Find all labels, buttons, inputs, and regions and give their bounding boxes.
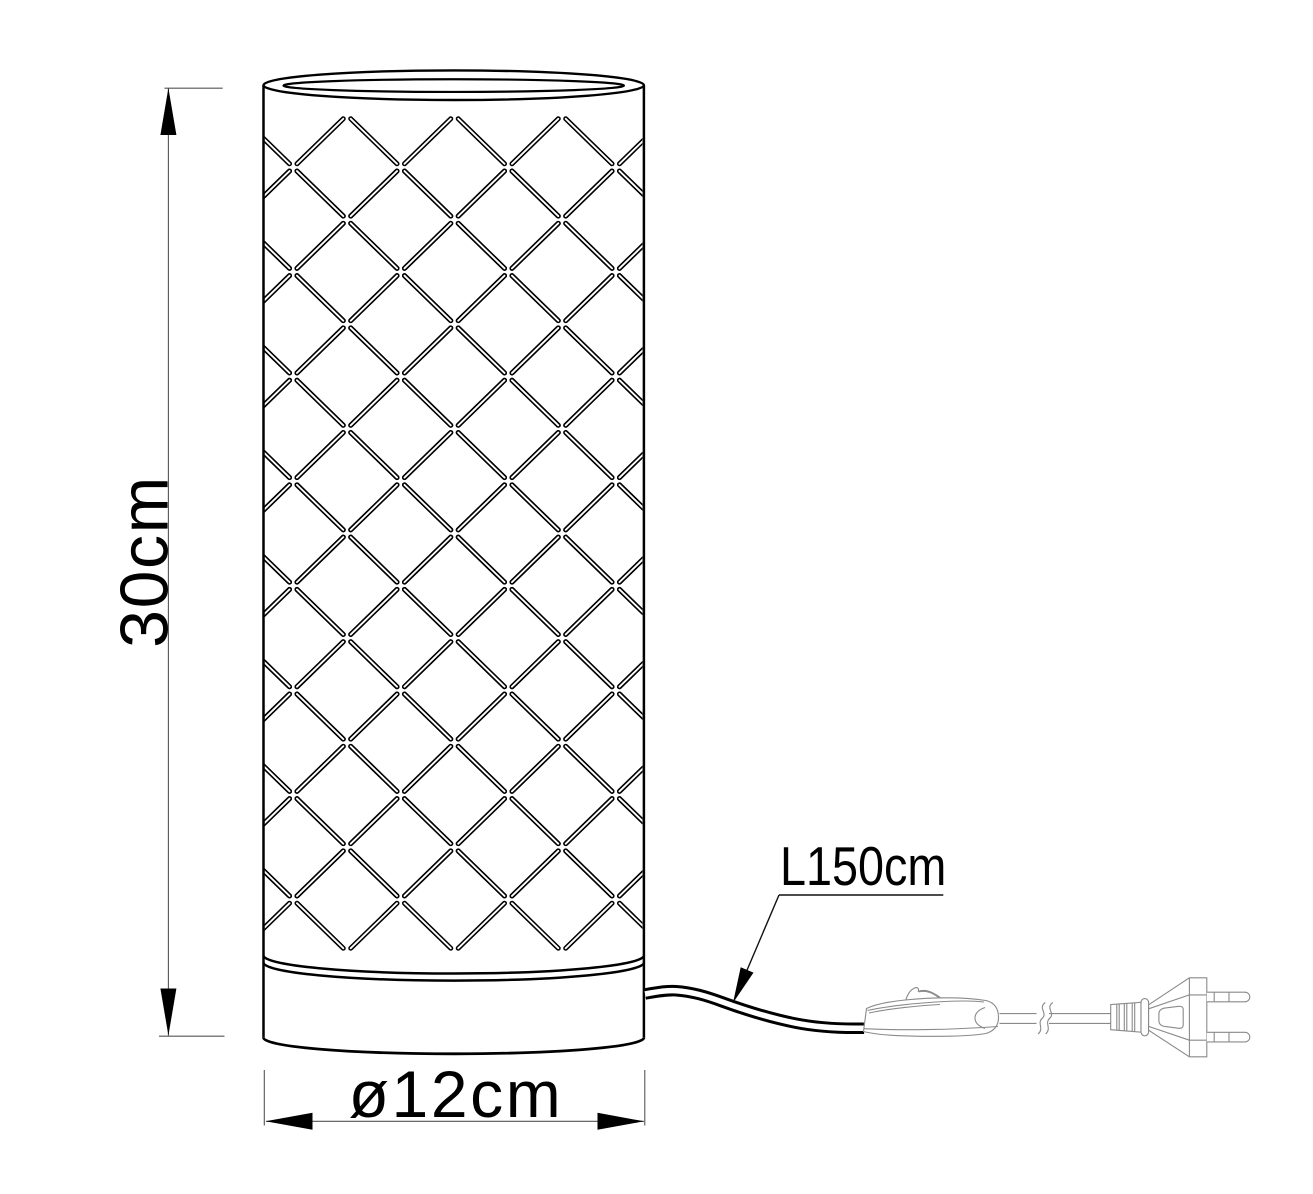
svg-text:30cm: 30cm xyxy=(106,475,182,648)
svg-text:L150cm: L150cm xyxy=(780,835,946,896)
svg-text:ø12cm: ø12cm xyxy=(349,1057,564,1131)
